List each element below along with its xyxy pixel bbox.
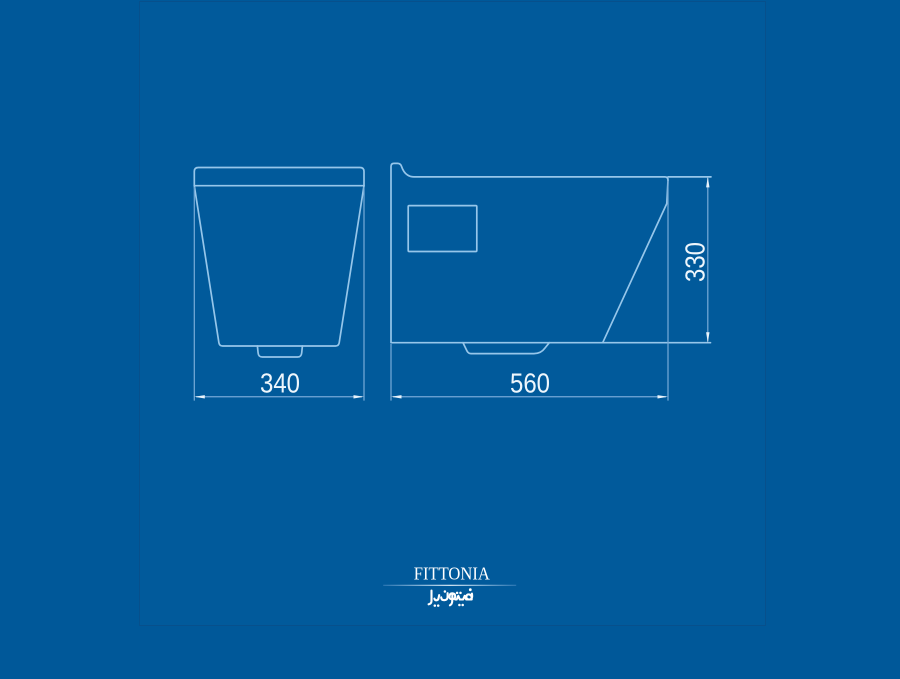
svg-text:340: 340 — [260, 368, 300, 399]
svg-text:560: 560 — [510, 368, 550, 399]
svg-text:330: 330 — [679, 242, 710, 282]
svg-text:FITTONIA: FITTONIA — [414, 564, 490, 584]
